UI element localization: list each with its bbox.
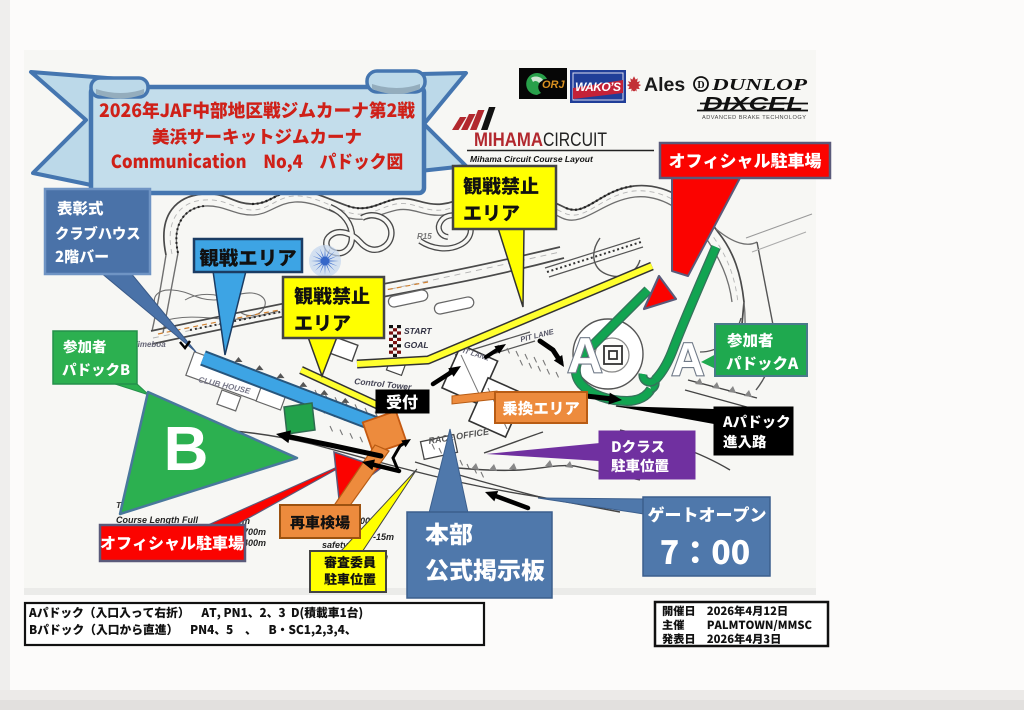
svg-text:DUNLOP: DUNLOP [711, 75, 808, 94]
svg-text:ORJ: ORJ [542, 79, 566, 91]
svg-text:B: B [164, 415, 209, 484]
svg-text:ADVANCED BRAKE TECHNOLOGY: ADVANCED BRAKE TECHNOLOGY [702, 115, 806, 121]
svg-text:A: A [567, 329, 602, 383]
svg-text:700m: 700m [243, 527, 266, 537]
svg-text:Ales: Ales [644, 74, 685, 96]
svg-text:-15m: -15m [373, 532, 394, 542]
svg-text:START: START [404, 326, 432, 336]
svg-text:CIRCUIT: CIRCUIT [543, 129, 607, 151]
svg-text:D: D [697, 80, 704, 91]
svg-text:Course Length Full: Course Length Full [116, 515, 198, 525]
svg-text:Mihama Circuit Course Layout: Mihama Circuit Course Layout [470, 154, 594, 164]
svg-text:A: A [671, 333, 704, 385]
svg-text:DIXCEL: DIXCEL [703, 94, 803, 114]
svg-text:WAKO’S: WAKO’S [575, 80, 621, 94]
svg-text:MIHAMA: MIHAMA [474, 129, 543, 151]
svg-text:R15: R15 [417, 232, 432, 241]
svg-text:GOAL: GOAL [404, 340, 429, 350]
